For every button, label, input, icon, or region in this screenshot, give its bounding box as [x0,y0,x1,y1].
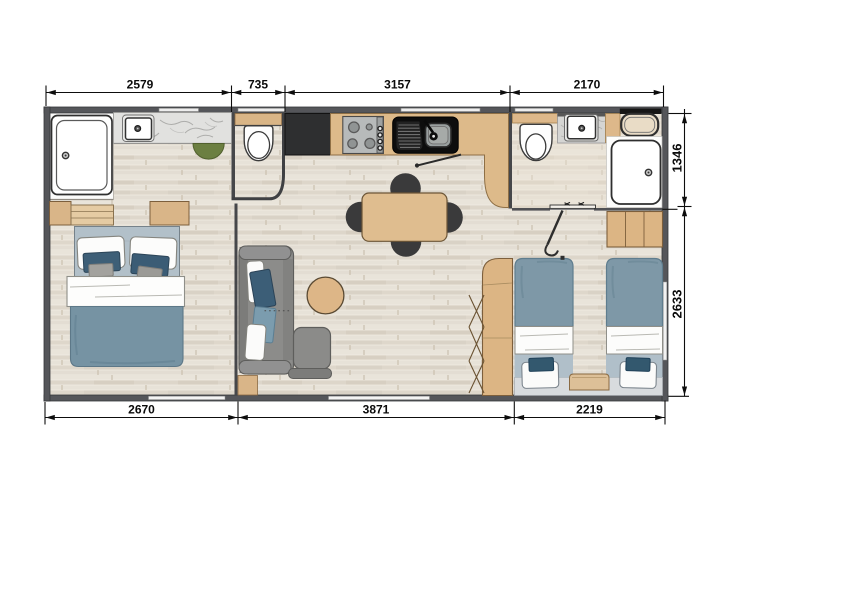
svg-text:3871: 3871 [363,403,390,417]
svg-text:2633: 2633 [670,290,685,319]
svg-text:2579: 2579 [127,78,154,92]
svg-text:735: 735 [248,78,268,92]
svg-text:2219: 2219 [576,403,603,417]
svg-text:3157: 3157 [384,78,411,92]
svg-text:2670: 2670 [128,403,155,417]
svg-text:2170: 2170 [574,78,601,92]
svg-text:1346: 1346 [670,144,685,173]
